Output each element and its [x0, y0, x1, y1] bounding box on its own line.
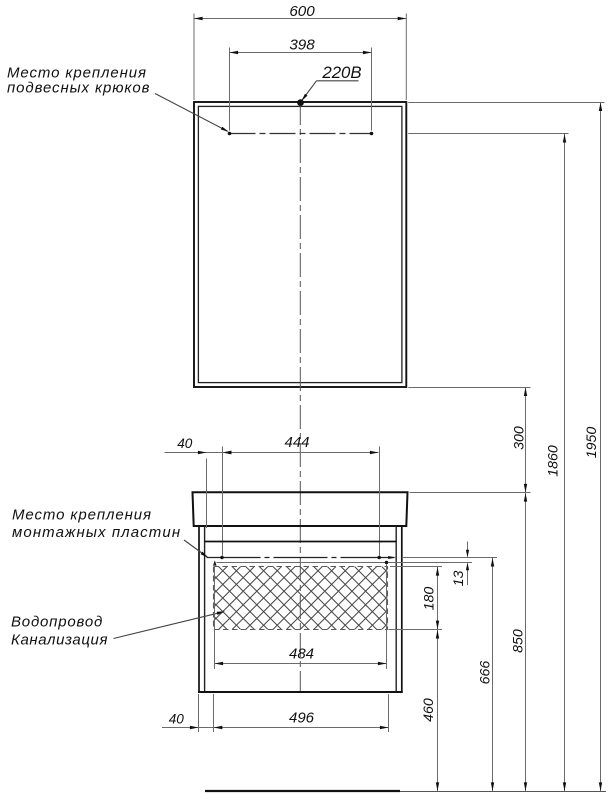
svg-text:444: 444 — [284, 434, 309, 451]
svg-text:1860: 1860 — [545, 445, 561, 477]
svg-text:600: 600 — [289, 3, 315, 20]
svg-text:496: 496 — [289, 710, 315, 727]
svg-text:Канализация: Канализация — [11, 632, 108, 649]
svg-text:300: 300 — [511, 426, 527, 450]
svg-text:Место крепления: Место крепления — [12, 507, 152, 524]
svg-text:1950: 1950 — [584, 427, 600, 459]
svg-text:монтажных пластин: монтажных пластин — [12, 524, 181, 541]
svg-text:398: 398 — [289, 37, 315, 54]
svg-text:подвесных крюков: подвесных крюков — [7, 80, 150, 97]
svg-text:484: 484 — [289, 645, 314, 662]
svg-text:850: 850 — [511, 629, 527, 653]
svg-text:666: 666 — [477, 661, 493, 685]
svg-text:40: 40 — [177, 436, 193, 451]
svg-text:460: 460 — [421, 698, 437, 722]
svg-text:180: 180 — [422, 587, 438, 611]
svg-text:220В: 220В — [321, 63, 361, 82]
svg-text:Водопровод: Водопровод — [11, 614, 103, 631]
svg-text:13: 13 — [451, 571, 467, 587]
svg-text:40: 40 — [169, 712, 185, 727]
